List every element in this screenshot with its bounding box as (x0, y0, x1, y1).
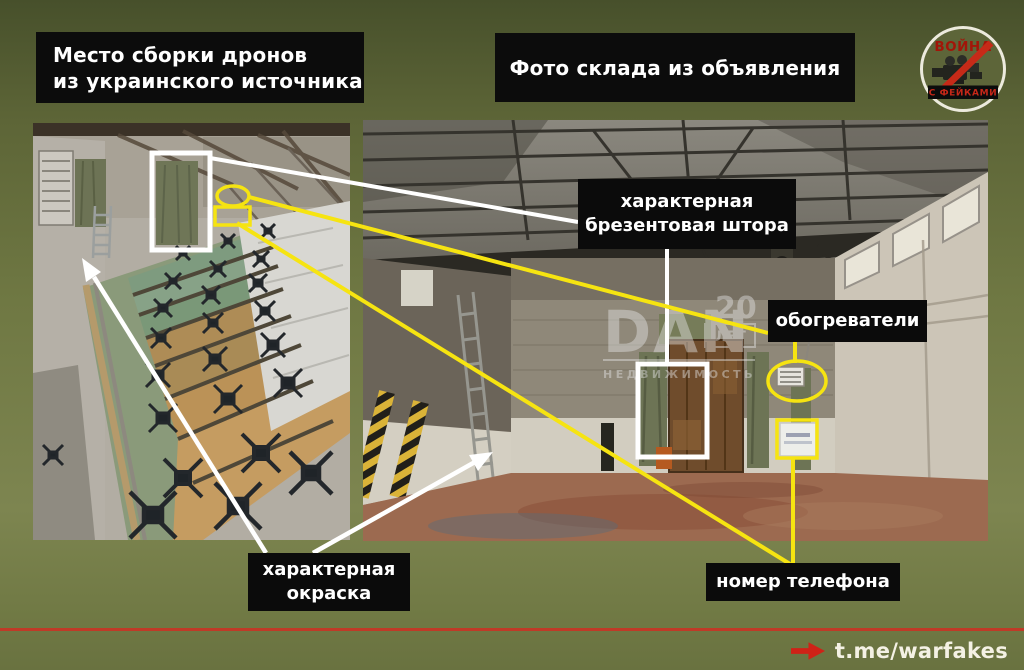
warfakes-logo-badge: ВОЙНА С ФЕЙКАМИ (918, 24, 1008, 114)
divider-line (0, 628, 1024, 631)
telegram-link[interactable]: t.me/warfakes (835, 639, 1008, 663)
footer: t.me/warfakes (791, 636, 1008, 666)
label-heaters: обогреватели (768, 300, 927, 342)
label-paint: характерная окраска (248, 553, 410, 611)
watermark-years-label: ЛЕТ (715, 329, 746, 345)
orange-box (656, 447, 672, 469)
left-photo-scene (33, 123, 350, 540)
radiator (601, 423, 614, 471)
label-curtain: характерная брезентовая штора (578, 179, 796, 249)
left-photo-title: Место сборки дронов из украинского источ… (36, 32, 364, 103)
watermark-years: 20 (715, 291, 757, 326)
ac-unit (39, 151, 73, 225)
red-arrow-icon (791, 641, 825, 661)
warfakes-logo: ВОЙНА С ФЕЙКАМИ (918, 24, 1008, 114)
left-wall-window (401, 270, 433, 306)
watermark-sub: НЕДВИЖИМОСТЬ (603, 368, 756, 381)
marked-curtain (156, 161, 198, 245)
right-photo-title: Фото склада из объявления (495, 33, 855, 102)
phone-sign (780, 423, 816, 456)
logo-bottom-text: С ФЕЙКАМИ (929, 87, 998, 99)
left-curtain (75, 159, 106, 227)
left-photo (33, 123, 350, 540)
label-phone: номер телефона (706, 563, 900, 601)
dan-watermark: DAN 20 ЛЕТ НЕДВИЖИМОСТЬ (603, 291, 757, 381)
